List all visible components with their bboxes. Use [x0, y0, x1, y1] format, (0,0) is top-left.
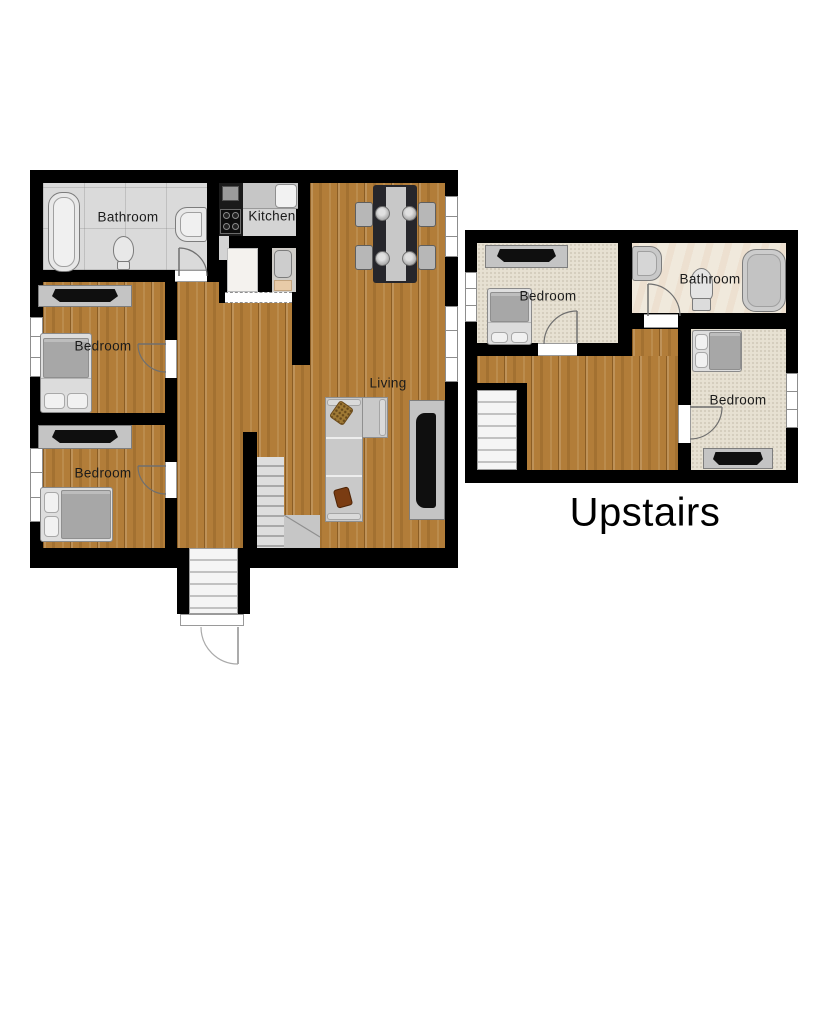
entry-steps	[189, 548, 238, 614]
toilet-bowl	[113, 236, 134, 263]
bedroom-bottom-door-threshold	[165, 462, 177, 498]
room-label-kitchen: Kitchen	[248, 209, 295, 224]
upstairs-bedroom-left-door-threshold	[538, 343, 577, 356]
upstairs-toilet-tank	[692, 298, 711, 311]
shower-basin	[180, 212, 202, 237]
room-label-bedroom-top: Bedroom	[75, 339, 132, 354]
upstairs-bathtub	[742, 249, 786, 312]
pantry-closet	[227, 248, 258, 292]
bedroom-hall-wall	[165, 270, 177, 548]
plate	[402, 206, 417, 221]
tv-upstairs-bedroom-right	[713, 452, 763, 465]
room-label-upstairs-bedroom-left: Bedroom	[520, 289, 577, 304]
upstairs-landing-notch	[632, 329, 678, 356]
pantry-opening	[225, 292, 292, 303]
tv-upstairs-bedroom-left	[497, 249, 556, 262]
bathtub-basin	[747, 254, 781, 307]
sofa-cushion-line	[326, 437, 362, 439]
pillow	[695, 352, 708, 368]
pillow	[44, 492, 59, 513]
room-label-bathroom: Bathroom	[98, 210, 159, 225]
bed-sheet-band	[41, 378, 91, 392]
upstairs-bedroom-right-window	[786, 373, 798, 428]
upstairs-bedroom-right-west-wall	[678, 313, 691, 470]
stove-burner	[223, 223, 230, 230]
room-label-upstairs-bathroom: Bathroom	[680, 272, 741, 287]
sofa-armrest	[379, 399, 386, 436]
plate	[375, 251, 390, 266]
entry-door-threshold	[180, 614, 244, 626]
bathroom-kitchen-wall	[207, 170, 219, 282]
blanket	[61, 490, 111, 539]
pillow	[491, 332, 508, 343]
utility-shelf	[274, 280, 292, 291]
dining-window	[445, 196, 458, 257]
plate	[375, 206, 390, 221]
sofa-armrest	[327, 513, 361, 520]
kitchen-sink	[222, 186, 239, 201]
shower	[175, 207, 207, 242]
bathtub	[48, 192, 80, 272]
entry-jamb-right	[238, 548, 250, 614]
tv-living	[416, 413, 436, 508]
upstairs-stair-side-wall	[517, 390, 527, 470]
plate	[402, 251, 417, 266]
stove-burner	[232, 212, 239, 219]
water-heater	[274, 250, 292, 278]
living-window	[445, 306, 458, 382]
pillow	[44, 393, 65, 409]
pillow	[44, 516, 59, 537]
stair-landing	[284, 515, 320, 548]
upstairs-title: Upstairs	[570, 491, 721, 536]
upstairs-stairs	[477, 390, 517, 470]
table-runner	[386, 187, 406, 281]
main-floor-plan: Bathroom Kitchen Bedroom Bedroom Living	[30, 170, 458, 670]
upstairs-bedroom-left-window	[465, 272, 477, 322]
upstairs-bedroom-right-door-threshold	[678, 405, 691, 443]
stove-burner	[232, 223, 239, 230]
room-label-upstairs-bedroom-right: Bedroom	[710, 393, 767, 408]
sink-basin	[637, 251, 657, 276]
upstairs-bedroom-left-east-wall	[618, 230, 632, 356]
stair-wall	[243, 432, 257, 548]
bed-upstairs-bedroom-right	[692, 330, 742, 372]
bathroom-door-threshold	[175, 270, 207, 282]
pillow	[511, 332, 528, 343]
bathtub-basin	[53, 197, 75, 267]
bedroom-separator-wall	[30, 413, 177, 425]
upstairs-bathroom-door-threshold	[644, 314, 678, 328]
pillow	[67, 393, 88, 409]
upstairs-stair-top-wall	[477, 383, 527, 390]
bed-sheet-band	[488, 322, 531, 332]
bed-bedroom-bottom	[40, 487, 113, 542]
dining-chair	[355, 245, 373, 270]
dining-chair	[418, 245, 436, 270]
room-label-living: Living	[369, 376, 406, 391]
stove-burner	[223, 212, 230, 219]
upstairs-sink	[632, 246, 662, 281]
dining-chair	[355, 202, 373, 227]
bedroom-top-door-threshold	[165, 340, 177, 378]
pillow	[695, 334, 708, 350]
fridge	[275, 184, 297, 208]
tv-bedroom-top	[52, 289, 118, 302]
upstairs-plan: Bedroom Bathroom Bedroom	[465, 230, 798, 483]
entry-jamb-left	[177, 548, 189, 614]
dining-chair	[418, 202, 436, 227]
toilet-base	[117, 261, 130, 270]
tv-bedroom-bottom	[52, 430, 118, 443]
interior-stairs	[257, 457, 284, 548]
sofa-cushion-line	[326, 475, 362, 477]
blanket	[709, 332, 741, 370]
room-label-bedroom-bottom: Bedroom	[75, 466, 132, 481]
